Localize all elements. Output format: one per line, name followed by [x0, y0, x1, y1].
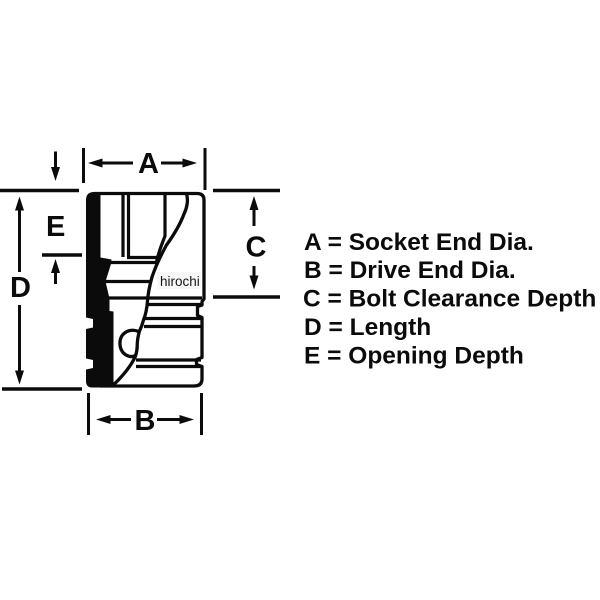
svg-text:A: A: [138, 148, 159, 180]
svg-text:hirochi: hirochi: [160, 274, 200, 289]
svg-text:C: C: [246, 232, 267, 264]
svg-text:A = Socket End Dia.: A = Socket End Dia.: [304, 229, 534, 256]
svg-text:B = Drive End Dia.: B = Drive End Dia.: [304, 257, 516, 284]
svg-text:D = Length: D = Length: [304, 314, 431, 341]
svg-text:C = Bolt Clearance Depth: C = Bolt Clearance Depth: [303, 286, 596, 313]
svg-text:D: D: [10, 272, 31, 304]
svg-text:E: E: [46, 211, 65, 243]
svg-text:B: B: [135, 405, 156, 437]
svg-text:E = Opening Depth: E = Opening Depth: [304, 343, 524, 370]
